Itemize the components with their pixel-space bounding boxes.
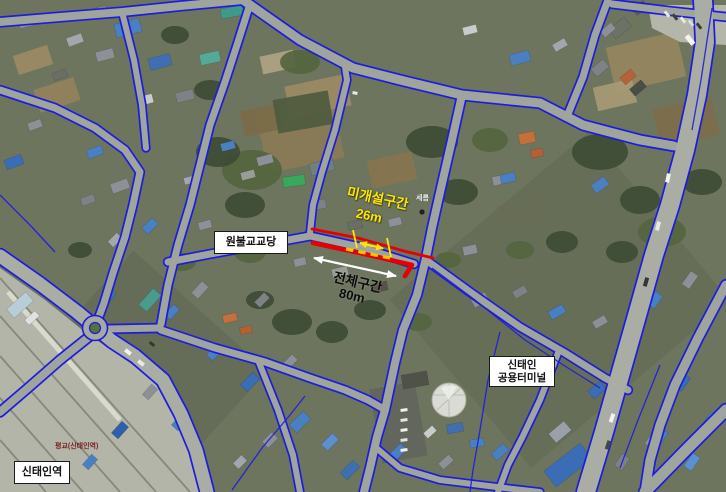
sintaein-station-label: 신태인역 <box>14 461 70 484</box>
sintaein-terminal-label: 신태인 공용터미널 <box>489 356 555 387</box>
roundabout <box>83 316 108 341</box>
small-station-label: 평교(신태인역) <box>55 441 98 451</box>
satellite-map: 미개설구간 26m 전체구간 80m 원불교교당 신태인역 신태인 공용터미널 … <box>0 0 726 492</box>
terminal-label-line2: 공용터미널 <box>498 372 546 385</box>
small-road-label: 세름 <box>416 193 429 203</box>
map-canvas <box>0 0 726 492</box>
won-buddhism-temple-label: 원불교교당 <box>214 231 288 254</box>
terminal-label-line1: 신태인 <box>508 359 537 372</box>
